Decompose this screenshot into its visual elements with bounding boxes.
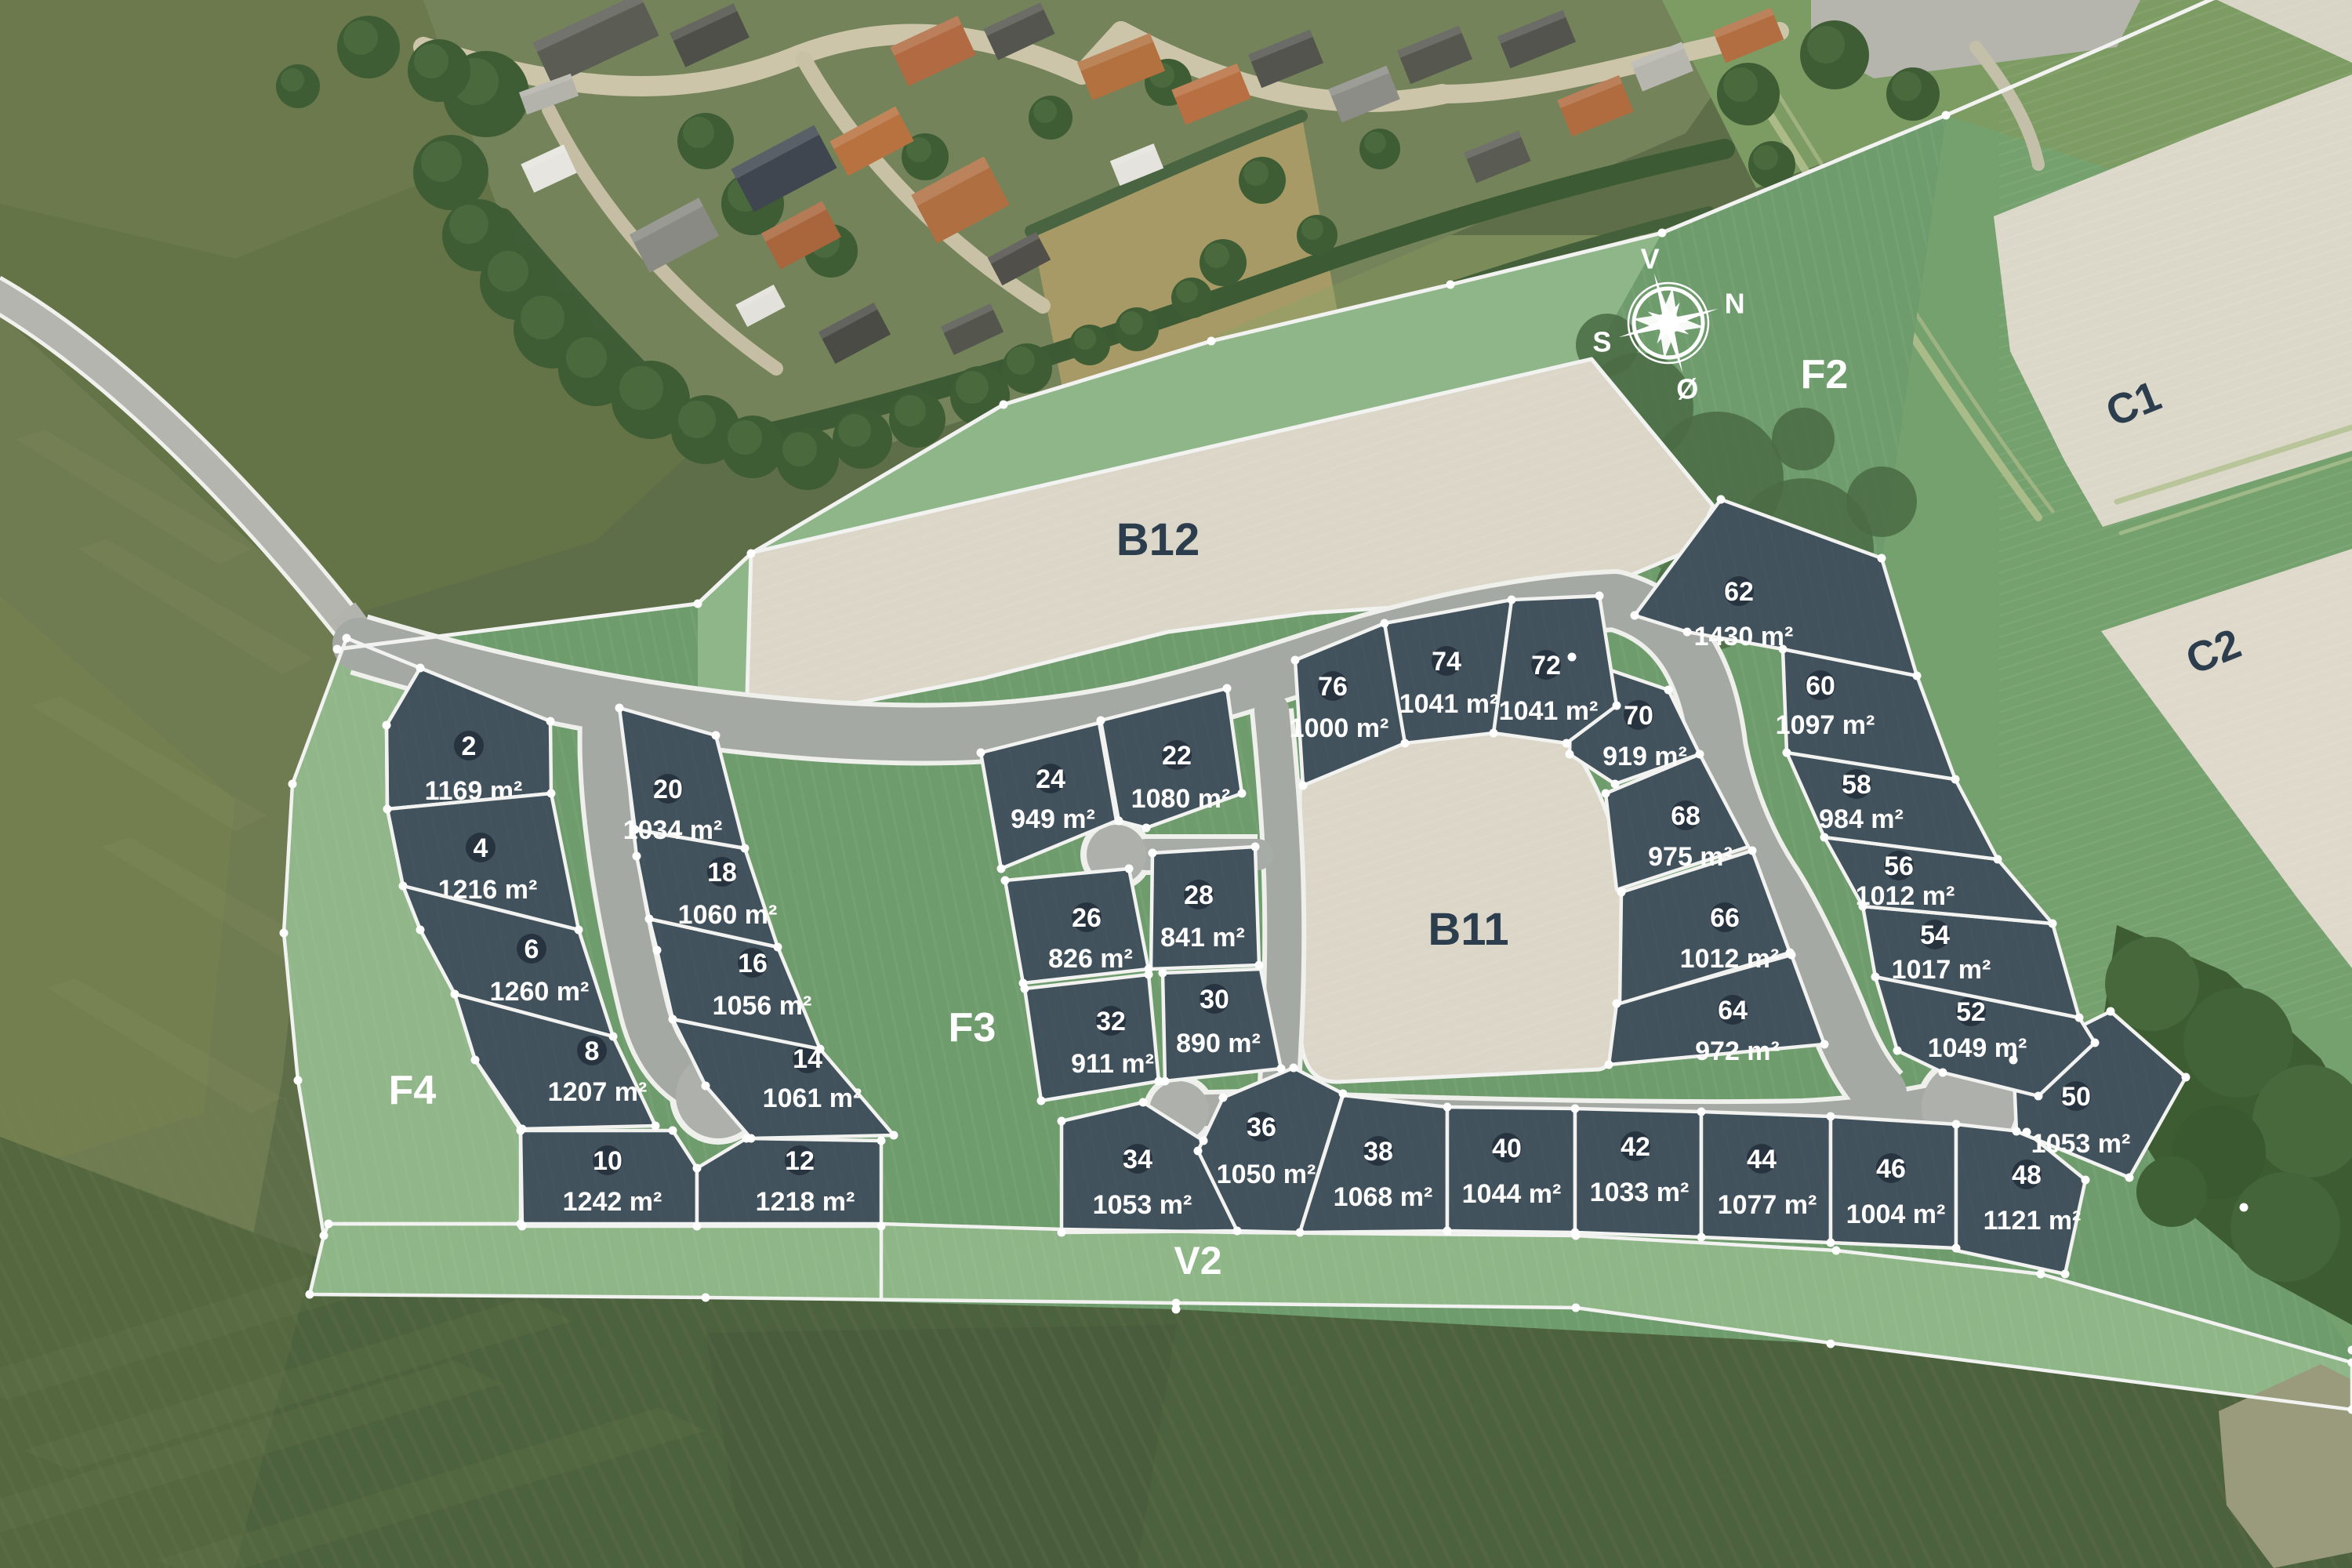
svg-text:30: 30 bbox=[1200, 985, 1229, 1014]
svg-text:72: 72 bbox=[1531, 651, 1561, 681]
svg-text:826 m²: 826 m² bbox=[1048, 944, 1133, 974]
svg-text:1012 m²: 1012 m² bbox=[1856, 881, 1955, 911]
svg-text:B11: B11 bbox=[1428, 904, 1508, 955]
svg-text:10: 10 bbox=[593, 1146, 622, 1176]
svg-text:28: 28 bbox=[1184, 880, 1214, 910]
svg-text:1060 m²: 1060 m² bbox=[678, 900, 778, 930]
svg-text:1077 m²: 1077 m² bbox=[1718, 1190, 1817, 1220]
svg-text:1218 m²: 1218 m² bbox=[756, 1187, 855, 1217]
svg-text:22: 22 bbox=[1162, 741, 1192, 771]
svg-text:46: 46 bbox=[1876, 1154, 1906, 1184]
svg-text:38: 38 bbox=[1363, 1137, 1393, 1167]
svg-text:76: 76 bbox=[1318, 672, 1348, 702]
svg-text:B12: B12 bbox=[1116, 514, 1200, 565]
svg-text:2: 2 bbox=[462, 731, 477, 761]
svg-text:54: 54 bbox=[1920, 920, 1950, 950]
svg-text:1080 m²: 1080 m² bbox=[1131, 784, 1231, 814]
svg-text:919 m²: 919 m² bbox=[1602, 742, 1687, 771]
svg-text:20: 20 bbox=[653, 775, 683, 804]
svg-text:N: N bbox=[1725, 288, 1745, 320]
svg-text:1000 m²: 1000 m² bbox=[1290, 713, 1389, 743]
svg-text:V: V bbox=[1641, 242, 1660, 274]
svg-text:1004 m²: 1004 m² bbox=[1846, 1200, 1946, 1229]
svg-text:40: 40 bbox=[1492, 1134, 1522, 1163]
svg-text:64: 64 bbox=[1718, 996, 1748, 1025]
svg-text:1053 m²: 1053 m² bbox=[1093, 1190, 1192, 1220]
svg-text:16: 16 bbox=[738, 949, 768, 978]
svg-text:42: 42 bbox=[1621, 1132, 1650, 1162]
svg-text:66: 66 bbox=[1710, 903, 1740, 933]
svg-text:1207 m²: 1207 m² bbox=[548, 1077, 648, 1107]
svg-text:50: 50 bbox=[2061, 1082, 2091, 1112]
svg-text:1041 m²: 1041 m² bbox=[1499, 696, 1599, 726]
svg-text:24: 24 bbox=[1036, 764, 1065, 794]
svg-text:972 m²: 972 m² bbox=[1695, 1036, 1780, 1066]
svg-text:44: 44 bbox=[1747, 1145, 1777, 1174]
svg-text:984 m²: 984 m² bbox=[1819, 804, 1904, 834]
svg-text:48: 48 bbox=[2012, 1160, 2042, 1190]
svg-text:F2: F2 bbox=[1801, 352, 1849, 397]
svg-text:Ø: Ø bbox=[1676, 373, 1698, 405]
svg-text:949 m²: 949 m² bbox=[1011, 804, 1095, 834]
svg-text:68: 68 bbox=[1671, 801, 1700, 831]
svg-text:1260 m²: 1260 m² bbox=[490, 977, 590, 1007]
svg-text:26: 26 bbox=[1072, 903, 1102, 933]
svg-text:911 m²: 911 m² bbox=[1071, 1049, 1154, 1079]
svg-text:1068 m²: 1068 m² bbox=[1334, 1182, 1433, 1212]
svg-text:890 m²: 890 m² bbox=[1176, 1029, 1261, 1058]
svg-text:1050 m²: 1050 m² bbox=[1217, 1160, 1316, 1189]
svg-text:841 m²: 841 m² bbox=[1160, 923, 1245, 953]
svg-text:1041 m²: 1041 m² bbox=[1399, 689, 1499, 719]
svg-text:S: S bbox=[1592, 325, 1611, 358]
svg-text:1053 m²: 1053 m² bbox=[2031, 1129, 2131, 1159]
svg-text:18: 18 bbox=[707, 858, 737, 887]
svg-text:56: 56 bbox=[1884, 851, 1914, 881]
svg-text:V2: V2 bbox=[1174, 1239, 1221, 1283]
svg-text:1044 m²: 1044 m² bbox=[1462, 1179, 1562, 1209]
svg-text:1061 m²: 1061 m² bbox=[763, 1083, 862, 1113]
svg-text:8: 8 bbox=[585, 1036, 600, 1066]
svg-text:32: 32 bbox=[1096, 1007, 1126, 1036]
svg-text:1242 m²: 1242 m² bbox=[563, 1187, 662, 1217]
svg-text:975 m²: 975 m² bbox=[1648, 842, 1733, 872]
svg-text:1430 m²: 1430 m² bbox=[1694, 622, 1794, 652]
svg-text:74: 74 bbox=[1432, 647, 1461, 677]
svg-text:58: 58 bbox=[1842, 770, 1871, 800]
svg-text:34: 34 bbox=[1123, 1145, 1152, 1174]
svg-text:1012 m²: 1012 m² bbox=[1680, 944, 1780, 974]
svg-text:4: 4 bbox=[474, 833, 488, 863]
svg-text:F4: F4 bbox=[389, 1068, 437, 1113]
svg-text:12: 12 bbox=[785, 1146, 815, 1176]
svg-text:60: 60 bbox=[1806, 671, 1835, 701]
svg-text:62: 62 bbox=[1724, 577, 1754, 607]
svg-text:1121 m²: 1121 m² bbox=[1984, 1206, 2082, 1236]
svg-text:1017 m²: 1017 m² bbox=[1892, 955, 1991, 985]
svg-text:1097 m²: 1097 m² bbox=[1776, 710, 1875, 740]
svg-text:1033 m²: 1033 m² bbox=[1590, 1178, 1690, 1207]
svg-text:70: 70 bbox=[1624, 701, 1653, 731]
svg-text:36: 36 bbox=[1247, 1112, 1276, 1142]
svg-text:F3: F3 bbox=[949, 1005, 996, 1051]
svg-text:52: 52 bbox=[1956, 997, 1986, 1027]
svg-text:1056 m²: 1056 m² bbox=[713, 991, 812, 1021]
svg-text:6: 6 bbox=[524, 935, 539, 964]
